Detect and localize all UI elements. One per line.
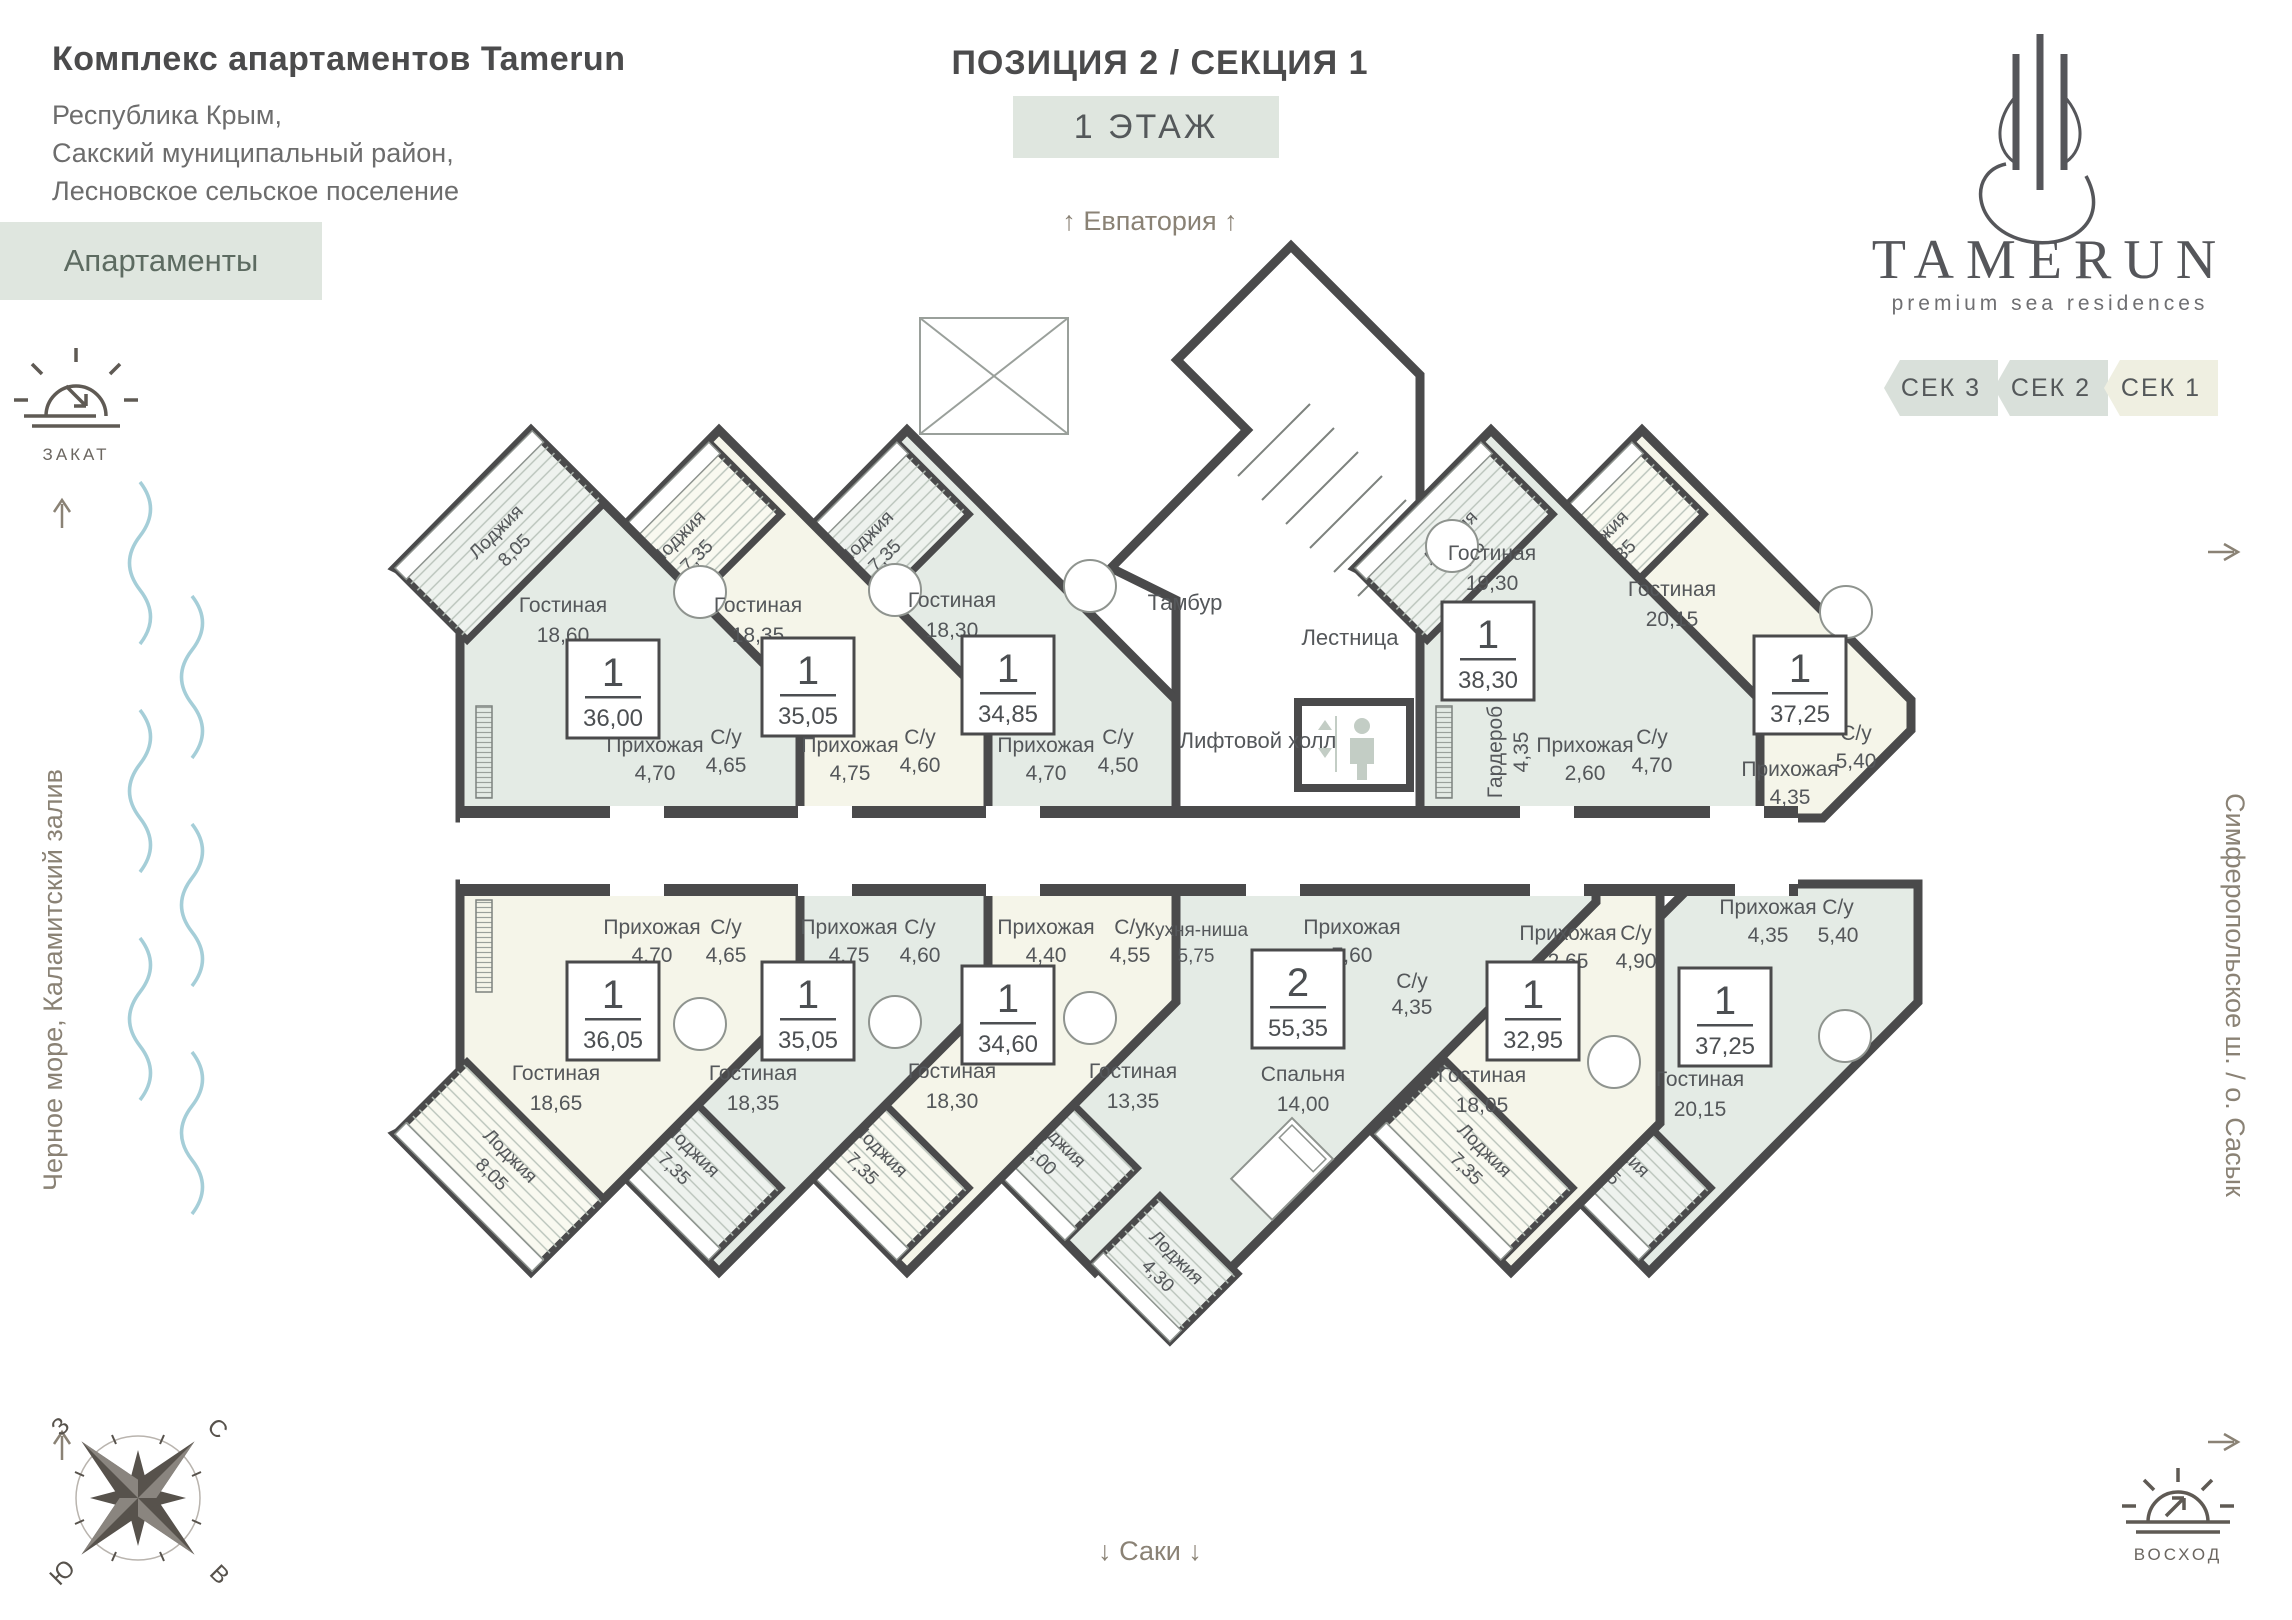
room-label: Гостиная [1438,1064,1526,1087]
room-label: С/у [1636,726,1668,749]
svg-text:2: 2 [1287,961,1309,1005]
room-label: С/у [710,726,742,749]
numbox-t2[interactable]: 135,05 [762,638,854,736]
room-label: Гостиная [1448,542,1536,565]
core-stairs-label: Лестница [1301,625,1399,650]
room-label: С/у [904,916,936,939]
room-area: 4,35 [1392,996,1433,1019]
numbox-b3[interactable]: 134,60 [962,966,1054,1064]
room-label: Гардероб [1484,706,1507,798]
svg-text:37,25: 37,25 [1695,1033,1755,1060]
room-label: Гостиная [1089,1060,1177,1083]
svg-text:1: 1 [1789,647,1811,691]
svg-text:1: 1 [797,649,819,693]
room-area: 4,40 [1026,944,1067,967]
room-label: С/у [1822,896,1854,919]
compass-north: С [202,1413,233,1444]
room-area: 4,70 [1632,754,1673,777]
room-area: 2,60 [1565,762,1606,785]
room-area: 18,30 [926,1090,979,1113]
sea-waves-icon [130,482,203,1214]
svg-text:37,25: 37,25 [1770,701,1830,728]
room-label: Спальня [1261,1063,1345,1086]
room-label: Прихожая [1303,916,1400,939]
room-area: 18,05 [1456,1094,1509,1117]
numbox-t1[interactable]: 136,00 [567,640,659,738]
svg-text:36,05: 36,05 [583,1027,643,1054]
numbox-b4[interactable]: 255,35 [1252,950,1344,1048]
room-area: 5,40 [1836,750,1877,773]
svg-text:1: 1 [1714,979,1736,1023]
room-label: Прихожая [1741,758,1838,781]
svg-text:32,95: 32,95 [1503,1027,1563,1054]
room-area: 4,35 [1748,924,1789,947]
room-label: Гостиная [714,594,802,617]
room-area: 4,35 [1510,732,1533,773]
room-label: Прихожая [800,916,897,939]
room-label: Гостиная [519,594,607,617]
sunrise-icon [2122,1468,2234,1532]
room-label: Гостиная [512,1062,600,1085]
room-label: Прихожая [603,916,700,939]
room-area: 4,65 [706,754,747,777]
room-area: 4,70 [1026,762,1067,785]
room-area: 4,60 [900,754,941,777]
numbox-b5[interactable]: 132,95 [1487,962,1579,1060]
numbox-t4[interactable]: 138,30 [1442,602,1534,700]
room-label: Гостиная [908,589,996,612]
compass-rose-icon: З С Ю В [25,1385,251,1611]
svg-text:1: 1 [602,651,624,695]
room-area: 18,35 [727,1092,780,1115]
room-label: С/у [904,726,936,749]
room-label: С/у [1114,916,1146,939]
room-label: Гостиная [1656,1068,1744,1091]
core-vestibule-label: Тамбур [1148,590,1223,615]
room-area: 4,55 [1110,944,1151,967]
svg-text:1: 1 [1477,613,1499,657]
room-area: 4,70 [635,762,676,785]
svg-text:35,05: 35,05 [778,1027,838,1054]
compass-south: Ю [45,1555,81,1591]
sunrise-label: ВОСХОД [2134,1545,2222,1564]
room-label: Прихожая [997,916,1094,939]
room-label: С/у [710,916,742,939]
room-area: 19,30 [1466,572,1519,595]
numbox-b2[interactable]: 135,05 [762,962,854,1060]
room-label: С/у [1620,922,1652,945]
compass-east: В [204,1559,234,1589]
room-label: Гостиная [709,1062,797,1085]
compass-west: З [46,1412,75,1441]
room-area: 5,40 [1818,924,1859,947]
core-elevator-hall-label: Лифтовой холл [1180,728,1337,753]
floor-plan-canvas: Лоджия 7,35 Лоджия 7,35 Лоджия 7,35 Лодж… [0,0,2292,1620]
svg-text:55,35: 55,35 [1268,1015,1328,1042]
svg-text:35,05: 35,05 [778,703,838,730]
room-area: 4,35 [1770,786,1811,809]
room-label: Прихожая [997,734,1094,757]
svg-text:36,00: 36,00 [583,705,643,732]
numbox-b6[interactable]: 137,25 [1679,968,1771,1066]
room-area: 14,00 [1277,1093,1330,1116]
left-shore-label: Черное море, Каламитский залив [38,769,68,1191]
room-area: 20,15 [1674,1098,1727,1121]
svg-text:34,85: 34,85 [978,701,1038,728]
corridor [460,806,1798,896]
room-label: С/у [1396,970,1428,993]
room-label: Кухня-ниша [1144,920,1249,941]
numbox-t5[interactable]: 137,25 [1754,636,1846,734]
room-area: 4,65 [706,944,747,967]
sunset-label: ЗАКАТ [43,445,110,464]
room-label: Гостиная [1628,578,1716,601]
svg-text:34,60: 34,60 [978,1031,1038,1058]
room-label: С/у [1102,726,1134,749]
room-area: 18,65 [530,1092,583,1115]
room-area: 4,60 [900,944,941,967]
svg-text:38,30: 38,30 [1458,667,1518,694]
svg-text:1: 1 [797,973,819,1017]
room-label: Прихожая [1519,922,1616,945]
room-area: 4,75 [830,762,871,785]
svg-text:1: 1 [997,977,1019,1021]
svg-text:1: 1 [602,973,624,1017]
sunset-icon [14,348,138,426]
numbox-t3[interactable]: 134,85 [962,636,1054,734]
room-area: 20,15 [1646,608,1699,631]
room-area: 5,75 [1178,946,1215,967]
right-road-label: Симферопольское ш. / о. Сасык [2220,793,2250,1197]
room-area: 4,90 [1616,950,1657,973]
brand-monogram-icon [1981,34,2094,243]
svg-text:1: 1 [997,647,1019,691]
numbox-b1[interactable]: 136,05 [567,962,659,1060]
room-label: Прихожая [1536,734,1633,757]
room-area: 13,35 [1107,1090,1160,1113]
room-area: 4,50 [1098,754,1139,777]
svg-text:1: 1 [1522,973,1544,1017]
room-label: Прихожая [1719,896,1816,919]
